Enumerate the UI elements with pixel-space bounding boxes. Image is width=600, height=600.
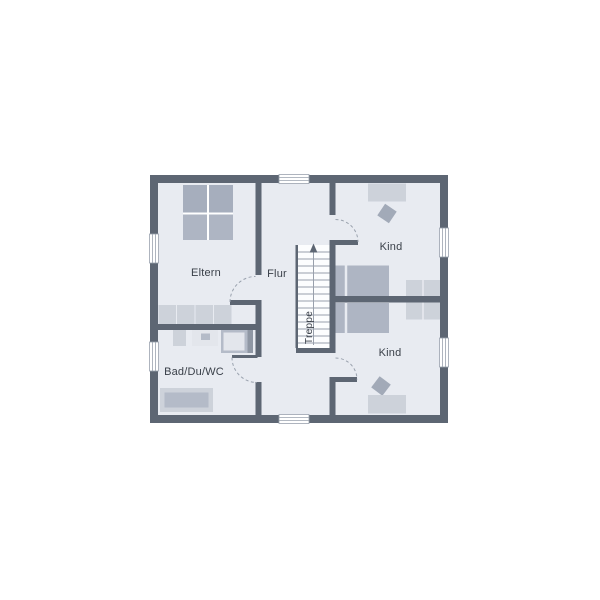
washbasin bbox=[201, 334, 210, 341]
wall-flur-kind-top-upper bbox=[330, 183, 336, 215]
shower-wall-edge bbox=[248, 330, 254, 353]
wardrobe-kind-top bbox=[368, 184, 406, 202]
door-leaf-kind-top bbox=[330, 240, 359, 245]
floor-plan-drawing: Eltern Flur Kind Kind Bad/Du/WC Treppe bbox=[0, 0, 600, 600]
wall-between-kind-rooms bbox=[336, 296, 441, 303]
room-label-flur: Flur bbox=[267, 268, 287, 280]
window-bottom bbox=[279, 415, 309, 424]
window-right-kind-top bbox=[440, 228, 449, 257]
shower-tray bbox=[224, 333, 245, 351]
bathtub-inner bbox=[165, 393, 209, 408]
wall-flur-kind-bottom-lower bbox=[330, 382, 336, 415]
wall-bad-flur-lower bbox=[256, 382, 262, 415]
wardrobe-segment bbox=[214, 305, 232, 324]
wall-eltern-bad bbox=[158, 324, 262, 330]
wardrobe-segment bbox=[196, 305, 214, 324]
window-right-kind-bottom bbox=[440, 338, 449, 367]
room-label-eltern: Eltern bbox=[191, 267, 221, 279]
wardrobe-segment bbox=[159, 305, 177, 324]
floor-plan-page: Eltern Flur Kind Kind Bad/Du/WC Treppe bbox=[0, 0, 600, 600]
wall-eltern-flur bbox=[256, 183, 262, 275]
wardrobe-kind-bottom bbox=[368, 395, 406, 414]
stairs-left-edge bbox=[296, 245, 299, 348]
exterior-wall-left bbox=[150, 175, 158, 423]
stairs-bottom-edge bbox=[296, 348, 332, 353]
stairs-label: Treppe bbox=[304, 311, 315, 344]
room-label-kind-top: Kind bbox=[380, 241, 403, 253]
bed-kind-top bbox=[336, 266, 390, 297]
window-left-bad bbox=[150, 342, 159, 371]
window-top bbox=[279, 175, 309, 184]
wall-stairs-kind bbox=[330, 240, 336, 353]
wardrobe-segment bbox=[177, 305, 195, 324]
door-leaf-eltern bbox=[230, 300, 258, 305]
toilet bbox=[173, 330, 186, 346]
door-leaf-bad bbox=[232, 355, 258, 358]
window-left-eltern bbox=[150, 234, 159, 263]
room-label-bad: Bad/Du/WC bbox=[164, 366, 224, 378]
exterior-wall-right bbox=[440, 175, 448, 423]
bed-kind-bottom bbox=[336, 303, 390, 333]
room-label-kind-bottom: Kind bbox=[379, 347, 402, 359]
door-leaf-kind-bottom bbox=[330, 377, 358, 382]
